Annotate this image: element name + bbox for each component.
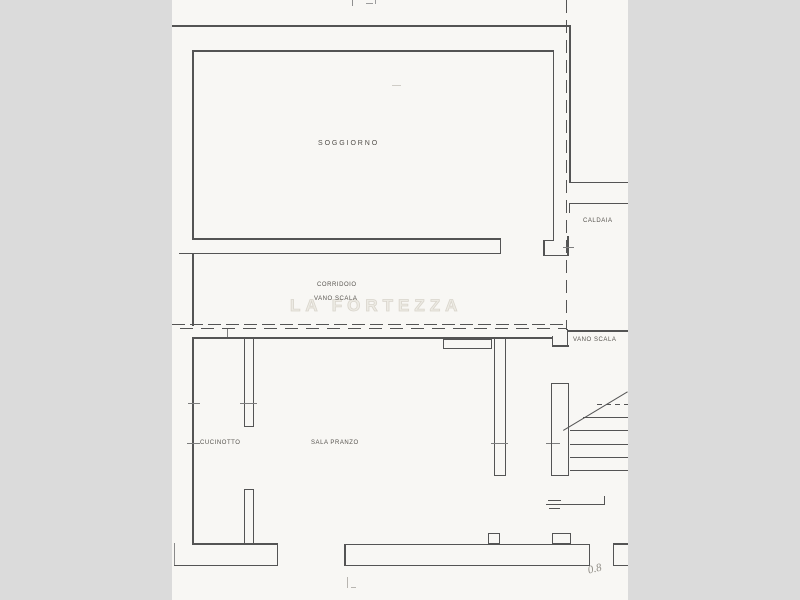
wall-line [344,565,590,567]
wall-line [179,253,501,255]
wall-line [570,457,628,458]
wall-line [548,500,561,501]
room-label-cucinotto: CUCINOTTO [200,440,241,446]
wall-line [567,329,569,347]
plan-rect [552,533,571,544]
wall-line [549,508,560,509]
wall-line [583,417,628,418]
wall-line [192,50,194,239]
wall-line [347,577,348,588]
wall-line [505,338,506,476]
wall-line [543,240,554,242]
wall-line [172,25,571,27]
wall-line [563,247,574,248]
wall-line [351,587,356,588]
wall-line [566,0,567,330]
wall-line [174,543,175,565]
scanned-floorplan-page: LA FORTEZZA SOGGIORNO CALDAIA CORRIDOIO … [0,0,800,600]
wall-line [569,182,628,183]
wall-line [244,489,245,543]
wall-line [491,443,508,444]
wall-line [277,543,279,566]
wall-line [352,0,353,6]
wall-line [192,254,194,326]
wall-line [172,324,568,326]
wall-line [570,444,628,445]
room-label-soggiorno: SOGGIORNO [318,140,379,147]
wall-line [589,544,591,567]
plan-rect [551,383,569,476]
wall-line [244,489,254,490]
wall-line [570,470,628,471]
wall-line [494,475,506,476]
wall-line [187,443,200,444]
wall-line [543,255,569,257]
wall-line [613,543,629,545]
plan-rect [443,339,492,349]
wall-line [192,337,194,544]
room-label-vano-scala-stair: VANO SCALA [573,337,616,343]
wall-line [569,203,628,204]
plan-rect [488,533,500,544]
room-label-caldaia: CALDAIA [583,218,613,224]
wall-line [174,565,278,567]
wall-line [344,544,346,567]
wall-line [569,25,571,183]
wall-line [366,3,373,4]
wall-line [244,426,254,427]
wall-line [570,430,628,431]
wall-line [240,403,257,404]
wall-line [562,504,604,505]
wall-line [192,50,554,52]
wall-line [494,338,495,476]
wall-line [392,85,401,86]
wall-line [604,496,605,505]
wall-line [546,504,563,505]
wall-line [172,328,566,330]
wall-line [192,337,553,339]
wall-line [553,50,555,240]
room-label-corridoio: CORRIDOIO [317,282,357,288]
room-label-vano-scala-corridor: VANO SCALA [314,296,357,302]
wall-line [227,329,228,337]
wall-line [253,338,254,427]
room-label-sala-pranzo: SALA PRANZO [311,440,359,446]
wall-line [244,338,245,427]
wall-line [375,0,376,4]
wall-line [613,565,629,567]
wall-line [500,238,502,254]
wall-line [597,404,628,405]
wall-line [253,489,254,543]
wall-line [567,330,628,332]
wall-line [613,543,615,566]
wall-line [569,204,570,213]
wall-line [192,238,500,240]
wall-line [188,403,200,404]
wall-line [192,543,278,545]
